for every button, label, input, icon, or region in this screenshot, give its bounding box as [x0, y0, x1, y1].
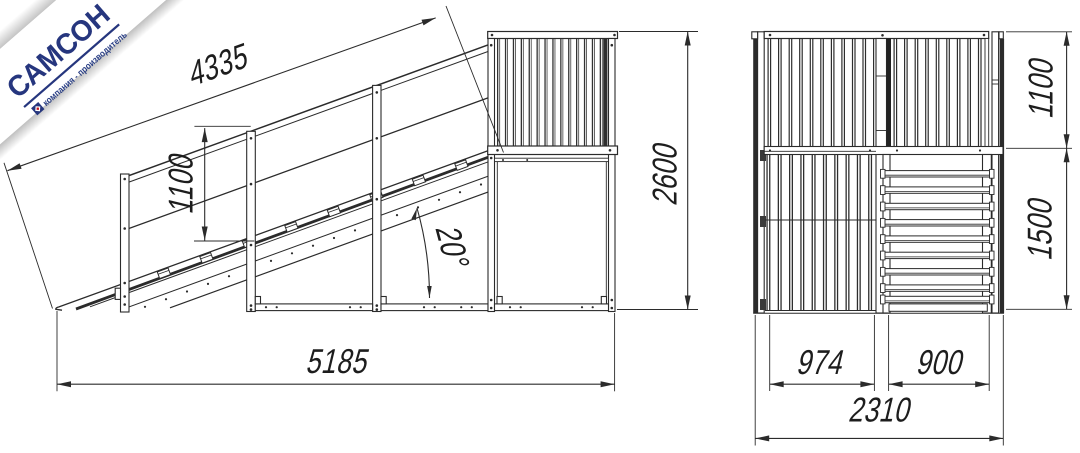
- svg-text:1100: 1100: [162, 148, 201, 216]
- svg-text:2310: 2310: [846, 391, 916, 430]
- svg-text:974: 974: [794, 343, 849, 382]
- svg-text:20°: 20°: [427, 227, 477, 268]
- svg-text:900: 900: [913, 343, 968, 382]
- svg-text:1100: 1100: [1022, 53, 1061, 121]
- svg-text:5185: 5185: [303, 342, 373, 381]
- svg-text:4335: 4335: [188, 35, 250, 95]
- svg-text:1500: 1500: [1021, 193, 1060, 263]
- svg-text:2600: 2600: [646, 138, 685, 208]
